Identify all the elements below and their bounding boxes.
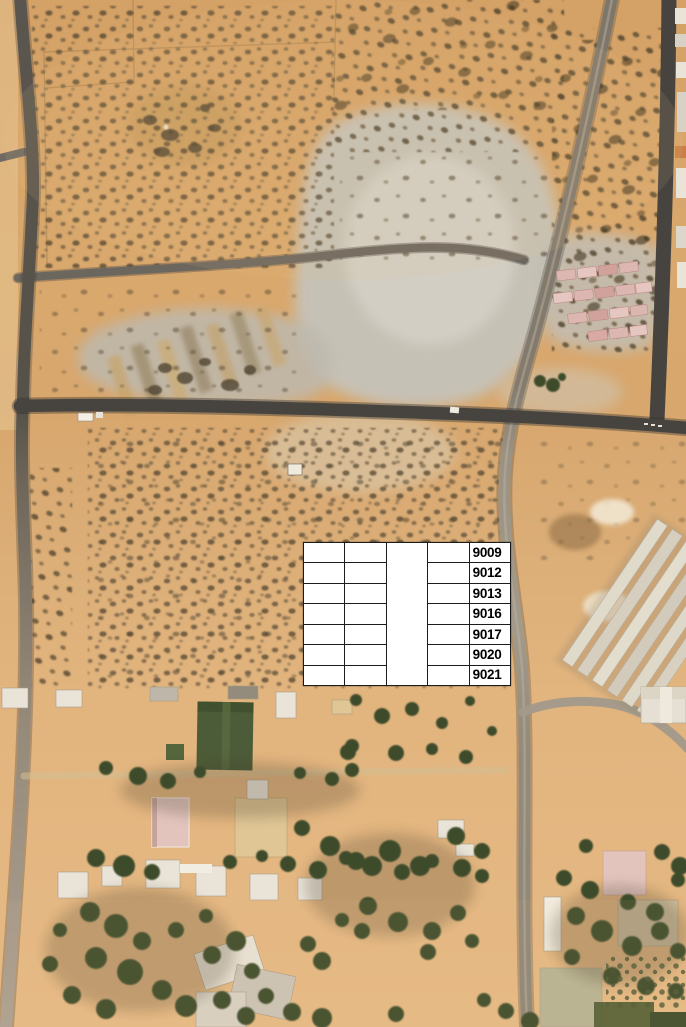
plot-id: 9016 [473, 607, 502, 621]
table-cell [304, 666, 344, 685]
table-cell [428, 563, 468, 583]
table-column-4 [428, 543, 469, 685]
table-column-1 [304, 543, 345, 685]
corner-building-complex [641, 687, 686, 723]
plot-table-overlay: 9009 9012 9013 9016 9017 9020 9021 [303, 542, 511, 686]
table-cell [345, 584, 385, 604]
table-cell [304, 584, 344, 604]
table-cell [428, 543, 468, 563]
table-cell [304, 543, 344, 563]
green-field [196, 702, 253, 771]
table-column-plot-ids: 9009 9012 9013 9016 9017 9020 9021 [470, 543, 510, 685]
satellite-aerial-image: 9009 9012 9013 9016 9017 9020 9021 [0, 0, 686, 1027]
plot-id: 9012 [473, 566, 502, 580]
table-cell [428, 666, 468, 685]
plot-id-cell: 9016 [470, 604, 510, 624]
table-cell [345, 604, 385, 624]
terrain-layer [0, 0, 686, 1027]
plot-id-cell: 9020 [470, 645, 510, 665]
table-cell [345, 563, 385, 583]
table-cell [304, 604, 344, 624]
table-cell [428, 645, 468, 665]
plot-id: 9020 [473, 648, 502, 662]
plot-id: 9013 [473, 587, 502, 601]
table-cell [428, 584, 468, 604]
table-cell [345, 543, 385, 563]
plot-id-cell: 9013 [470, 584, 510, 604]
table-cell [304, 563, 344, 583]
table-cell [304, 625, 344, 645]
road-shoulder [0, 0, 18, 430]
plot-id-cell: 9012 [470, 563, 510, 583]
table-cell [345, 645, 385, 665]
plot-id-cell: 9021 [470, 666, 510, 685]
plot-id: 9009 [473, 546, 502, 560]
table-cell [428, 604, 468, 624]
plot-id-cell: 9017 [470, 625, 510, 645]
plot-id-cell: 9009 [470, 543, 510, 563]
table-cell [304, 645, 344, 665]
table-column-3-merged [387, 543, 428, 685]
table-column-2 [345, 543, 386, 685]
table-cell [345, 666, 385, 685]
plot-id: 9021 [473, 668, 502, 682]
table-cell [345, 625, 385, 645]
table-cell [428, 625, 468, 645]
plot-id: 9017 [473, 628, 502, 642]
